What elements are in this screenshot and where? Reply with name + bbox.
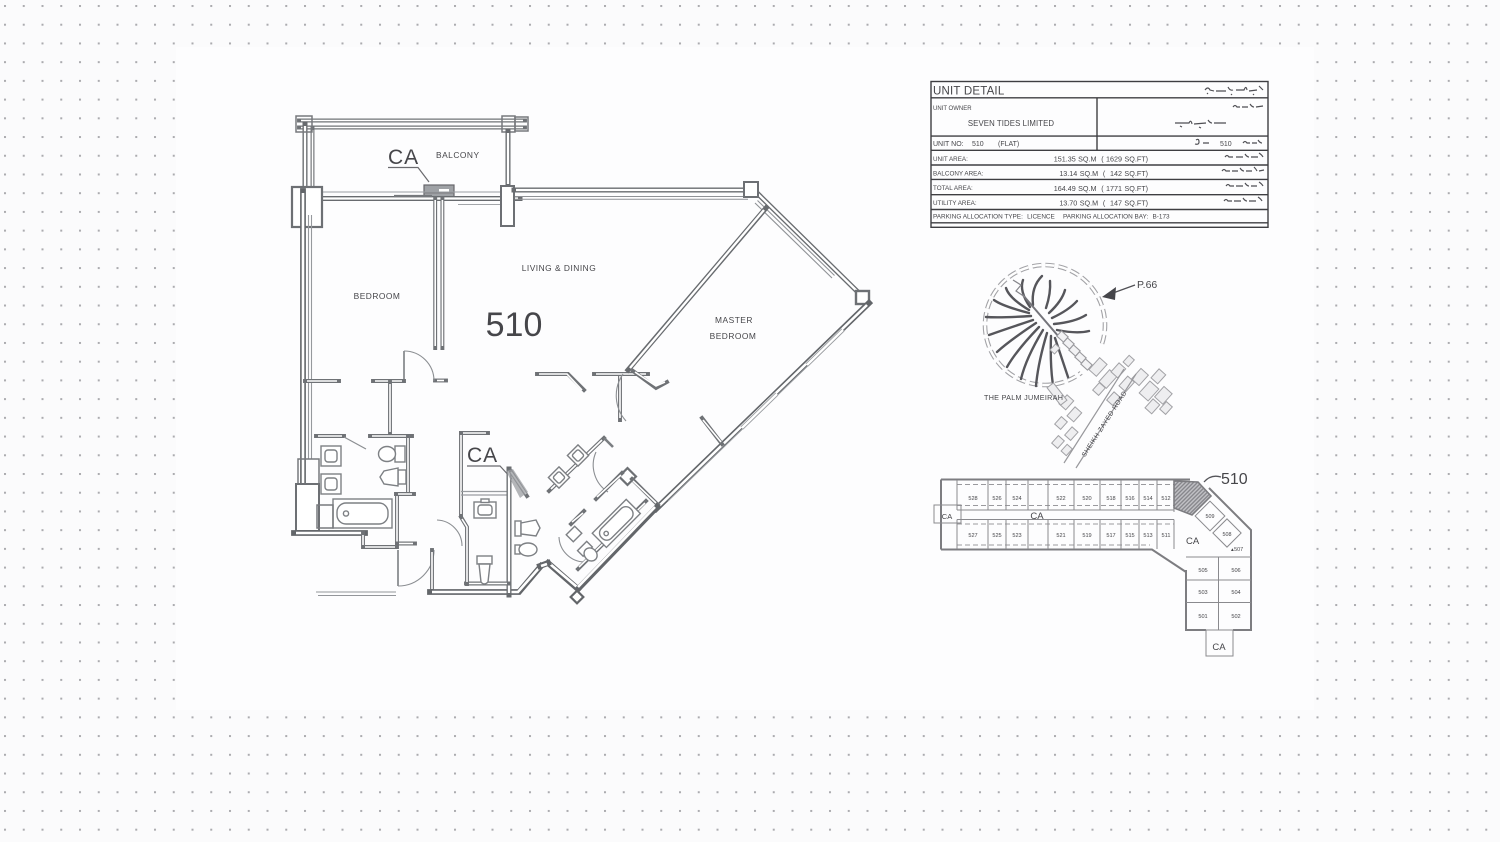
svg-text:515: 515 bbox=[1125, 533, 1134, 539]
svg-text:525: 525 bbox=[992, 533, 1001, 539]
svg-text:501: 501 bbox=[1198, 614, 1207, 620]
svg-text:521: 521 bbox=[1056, 533, 1065, 539]
svg-text:510: 510 bbox=[486, 306, 543, 344]
svg-text:151.35 SQ.M ( 1629 SQ.FT): 151.35 SQ.M ( 1629 SQ.FT) bbox=[1054, 155, 1148, 164]
svg-text:524: 524 bbox=[1012, 496, 1021, 502]
svg-text:LIVING & DINING: LIVING & DINING bbox=[522, 263, 597, 273]
svg-text:504: 504 bbox=[1231, 590, 1240, 596]
svg-text:UNIT DETAIL: UNIT DETAIL bbox=[933, 86, 1005, 98]
svg-text:528: 528 bbox=[968, 496, 977, 502]
svg-text:PARKING ALLOCATION BAY: B-173: PARKING ALLOCATION BAY: B-173 bbox=[1063, 214, 1170, 221]
svg-text:506: 506 bbox=[1231, 568, 1240, 574]
svg-text:510: 510 bbox=[972, 141, 984, 148]
svg-text:TOTAL AREA:: TOTAL AREA: bbox=[933, 185, 973, 192]
svg-text:CA: CA bbox=[467, 444, 498, 467]
svg-text:526: 526 bbox=[992, 496, 1001, 502]
svg-text:THE PALM JUMEIRAH: THE PALM JUMEIRAH bbox=[984, 393, 1063, 402]
svg-text:CA: CA bbox=[1030, 511, 1044, 522]
svg-text:511: 511 bbox=[1162, 533, 1171, 539]
svg-text:(FLAT): (FLAT) bbox=[998, 141, 1019, 148]
svg-text:13.70 SQ.M ( 147 SQ.FT): 13.70 SQ.M ( 147 SQ.FT) bbox=[1059, 199, 1148, 208]
svg-text:517: 517 bbox=[1106, 533, 1115, 539]
svg-text:513: 513 bbox=[1143, 533, 1152, 539]
svg-text:505: 505 bbox=[1198, 568, 1207, 574]
svg-text:MASTER: MASTER bbox=[715, 315, 753, 325]
svg-text:SEVEN TIDES LIMITED: SEVEN TIDES LIMITED bbox=[968, 119, 1055, 128]
svg-text:510: 510 bbox=[1220, 141, 1232, 148]
svg-text:164.49 SQ.M ( 1771 SQ.FT): 164.49 SQ.M ( 1771 SQ.FT) bbox=[1054, 184, 1148, 193]
svg-text:BEDROOM: BEDROOM bbox=[710, 331, 757, 341]
svg-text:527: 527 bbox=[968, 533, 977, 539]
svg-text:514: 514 bbox=[1143, 496, 1152, 502]
svg-text:520: 520 bbox=[1082, 496, 1091, 502]
svg-text:BALCONY: BALCONY bbox=[436, 150, 480, 160]
svg-text:BALCONY AREA:: BALCONY AREA: bbox=[933, 170, 984, 177]
svg-text:13.14 SQ.M ( 142 SQ.FT): 13.14 SQ.M ( 142 SQ.FT) bbox=[1059, 169, 1148, 178]
svg-text:502: 502 bbox=[1231, 614, 1240, 620]
svg-text:519: 519 bbox=[1082, 533, 1091, 539]
svg-text:UNIT AREA:: UNIT AREA: bbox=[933, 156, 968, 163]
svg-text:523: 523 bbox=[1012, 533, 1021, 539]
svg-text:▴ 507: ▴ 507 bbox=[1231, 547, 1243, 553]
svg-text:CA: CA bbox=[942, 512, 952, 521]
svg-text:UTILITY AREA:: UTILITY AREA: bbox=[933, 200, 977, 207]
svg-text:510: 510 bbox=[1221, 471, 1248, 488]
svg-text:518: 518 bbox=[1106, 496, 1115, 502]
svg-text:512: 512 bbox=[1161, 496, 1170, 502]
svg-text:509: 509 bbox=[1206, 514, 1215, 520]
svg-text:522: 522 bbox=[1056, 496, 1065, 502]
svg-text:UNIT OWNER: UNIT OWNER bbox=[933, 106, 972, 112]
svg-text:CA: CA bbox=[388, 146, 419, 169]
svg-text:BEDROOM: BEDROOM bbox=[354, 291, 401, 301]
svg-text:CA: CA bbox=[1212, 642, 1226, 653]
svg-text:P.66: P.66 bbox=[1137, 279, 1157, 291]
svg-text:UNIT NO:: UNIT NO: bbox=[933, 141, 964, 148]
svg-text:508: 508 bbox=[1223, 532, 1232, 538]
svg-text:503: 503 bbox=[1198, 590, 1207, 596]
svg-text:516: 516 bbox=[1125, 496, 1134, 502]
svg-text:PARKING ALLOCATION TYPE: LICE: PARKING ALLOCATION TYPE: LICENCE bbox=[933, 214, 1055, 221]
svg-text:CA: CA bbox=[1186, 536, 1200, 547]
